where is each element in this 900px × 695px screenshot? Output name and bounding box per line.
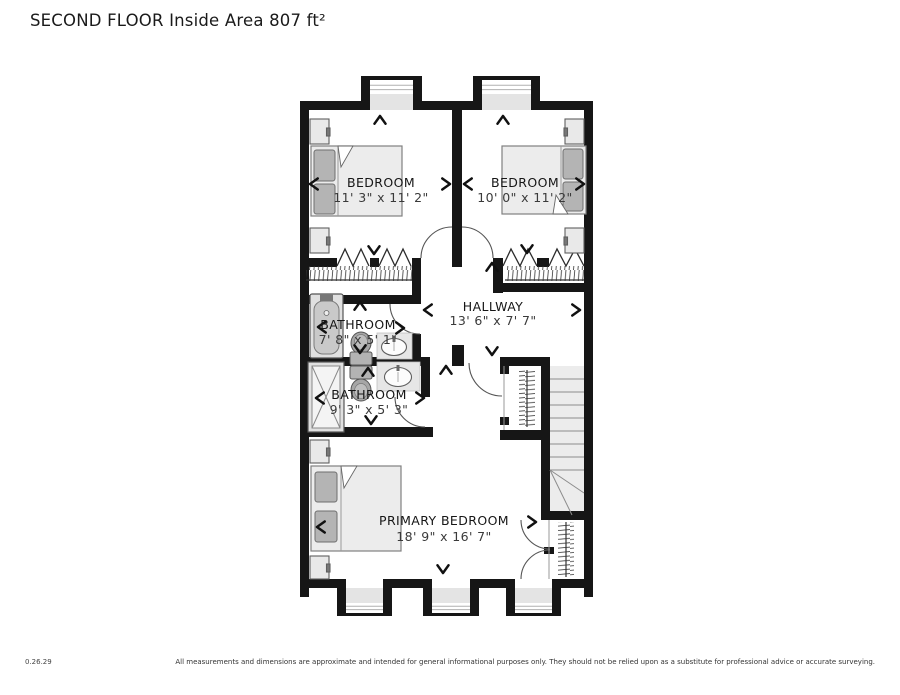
window <box>515 603 552 613</box>
window <box>432 603 470 613</box>
room-label-bedroom-left: BEDROOM <box>347 175 415 190</box>
closet-rod-icon <box>519 370 535 427</box>
room-label-bathroom-lower: BATHROOM <box>331 387 407 402</box>
arrow-down-icon <box>366 416 377 424</box>
arrow-right-icon <box>442 179 450 190</box>
closet-rod-icon <box>505 266 585 281</box>
room-label-bedroom-right: BEDROOM <box>491 175 559 190</box>
arrow-left-icon <box>424 305 432 316</box>
floor-plan-page: SECOND FLOOR Inside Area 807 ft² <box>0 0 900 695</box>
window <box>482 81 531 94</box>
arrow-up-icon <box>441 366 452 374</box>
version-label: 0.26.29 <box>25 658 52 666</box>
door-arc <box>521 550 550 579</box>
disclaimer-text: All measurements and dimensions are appr… <box>175 658 875 666</box>
stairs-icon <box>550 366 584 515</box>
room-label-primary-bedroom: PRIMARY BEDROOM <box>379 513 509 528</box>
arrow-up-icon <box>498 116 509 124</box>
arrow-left-icon <box>464 179 472 190</box>
room-label-bathroom-upper: BATHROOM <box>320 317 396 332</box>
arrow-down-icon <box>369 246 380 254</box>
floor-plan: BEDROOM 11' 3" x 11' 2" BEDROOM 10' 0" x… <box>0 0 900 695</box>
room-dims-bedroom-right: 10' 0" x 11' 2" <box>477 190 572 205</box>
arrow-down-icon <box>487 347 498 355</box>
closet-rod-icon <box>306 266 412 281</box>
room-dims-primary-bedroom: 18' 9" x 16' 7" <box>396 529 491 544</box>
arrow-right-icon <box>572 305 580 316</box>
closet-rod-icon <box>558 522 574 577</box>
arrow-right-icon <box>396 323 404 334</box>
door-arc <box>469 363 502 396</box>
arrow-right-icon <box>528 517 536 528</box>
room-dims-bathroom-upper: 7' 8" x 5' 1" <box>319 332 398 347</box>
arrow-down-icon <box>522 245 533 253</box>
room-label-hallway: HALLWAY <box>463 299 523 314</box>
door-arc <box>421 227 452 258</box>
room-dims-bathroom-lower: 9' 3" x 5' 3" <box>330 402 409 417</box>
window <box>370 81 413 94</box>
door-arc <box>521 520 550 549</box>
window <box>346 603 383 613</box>
door-arc <box>462 227 493 258</box>
arrow-up-icon <box>375 116 386 124</box>
room-dims-hallway: 13' 6" x 7' 7" <box>449 313 536 328</box>
arrow-down-icon <box>438 565 449 573</box>
room-dims-bedroom-left: 11' 3" x 11' 2" <box>333 190 428 205</box>
bed-icon <box>311 466 401 551</box>
